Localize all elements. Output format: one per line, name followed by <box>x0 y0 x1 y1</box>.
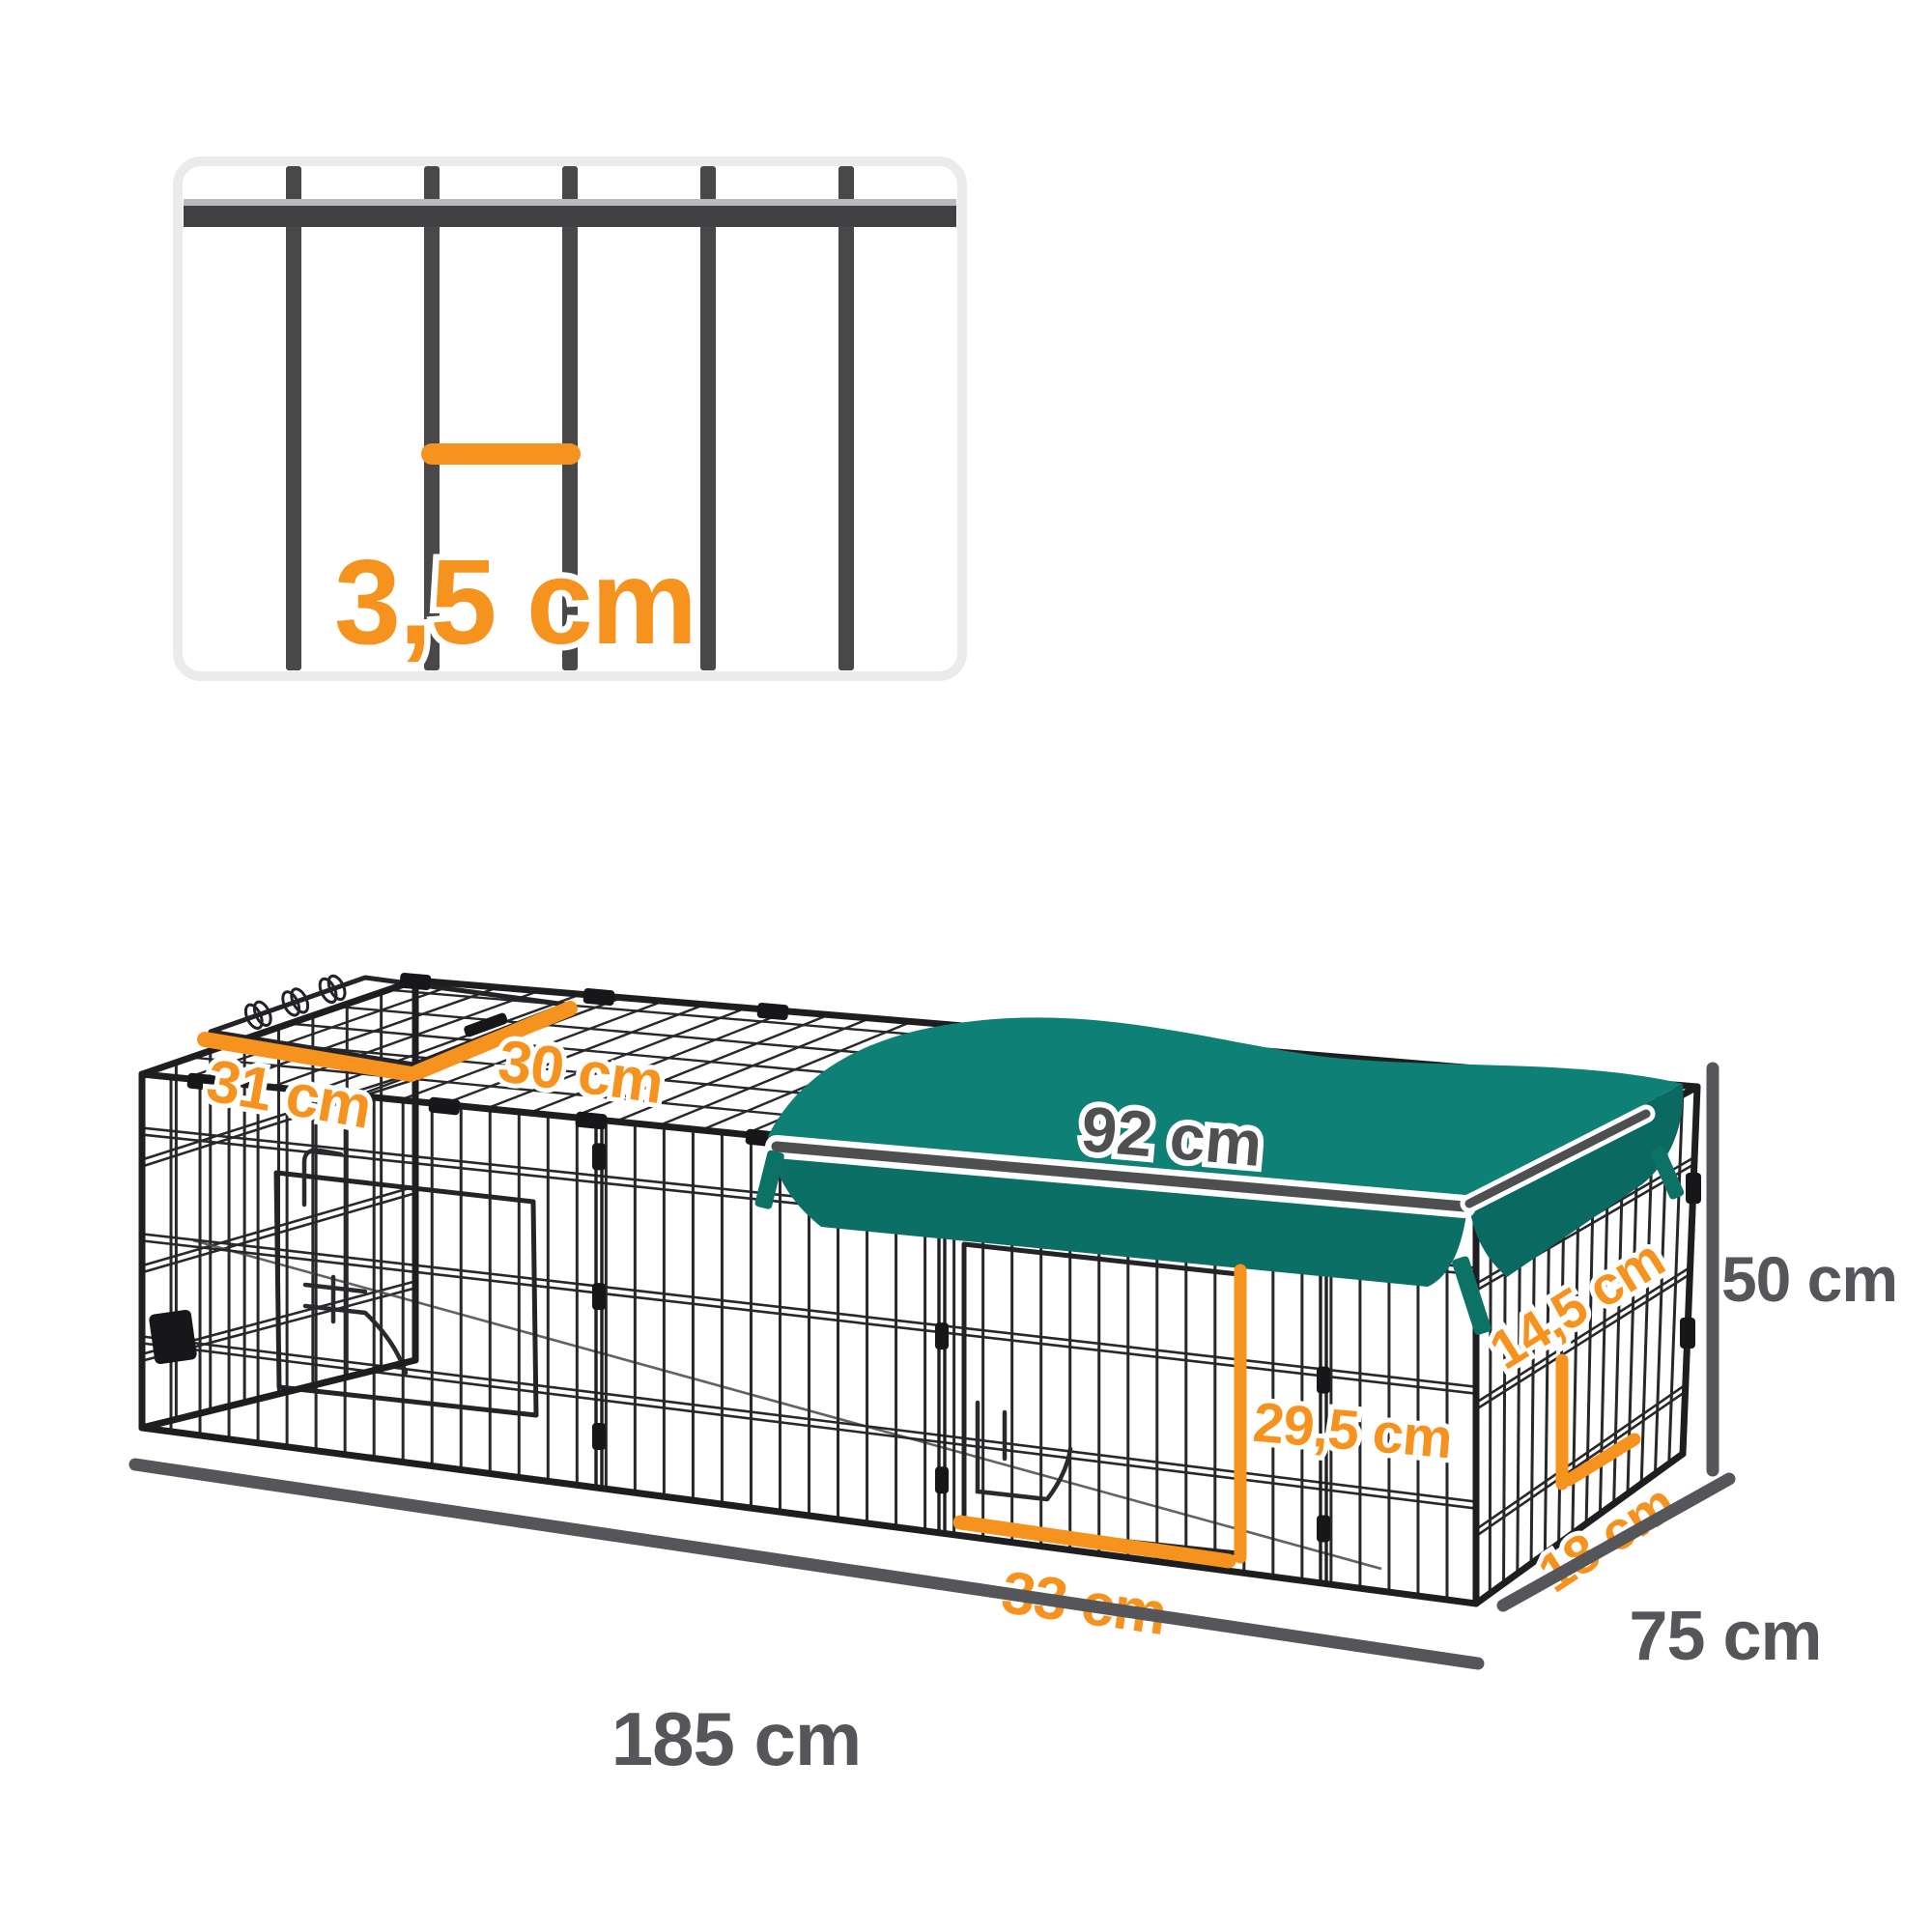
inset-horizontal-bar <box>184 206 956 227</box>
playpen-diagram-canvas: 3,5 cm 31 cm 30 cm 29,5 cm <box>0 0 1932 1932</box>
dim-line-length <box>135 1464 1478 1663</box>
dim-label-height: 50 cm <box>1721 1243 1897 1315</box>
dim-label-front-door-height: 29,5 cm <box>1251 1391 1455 1471</box>
interior-lines <box>193 1240 1381 1569</box>
bar-spacing-inset: 3,5 cm <box>178 161 962 676</box>
dim-label-roof-door-front: 30 cm <box>495 1028 668 1117</box>
inset-measure-label: 3,5 cm <box>334 536 696 669</box>
product-dimension-diagram: 3,5 cm 31 cm 30 cm 29,5 cm <box>0 0 1932 1932</box>
inset-bar-highlight <box>184 199 956 206</box>
dim-label-length: 185 cm <box>611 1696 862 1781</box>
dim-label-depth: 75 cm <box>1629 1598 1821 1675</box>
